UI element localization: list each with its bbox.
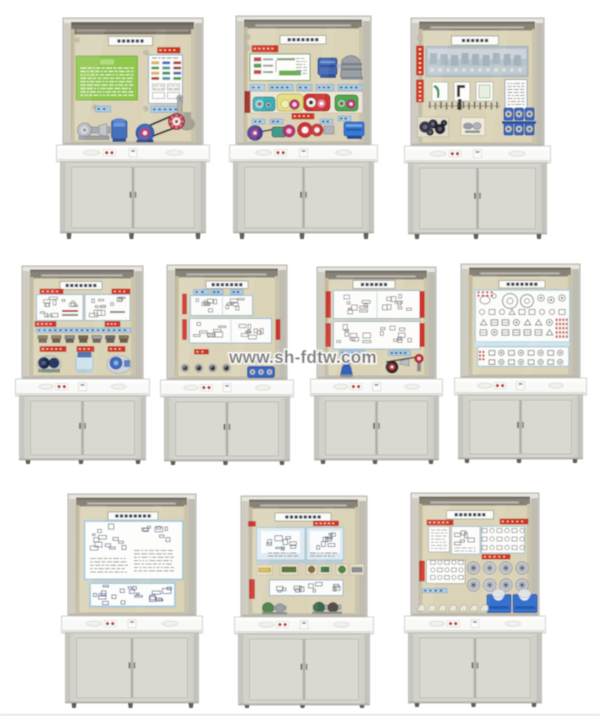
svg-text:www.sh-fdtw.com: www.sh-fdtw.com [228,347,377,367]
